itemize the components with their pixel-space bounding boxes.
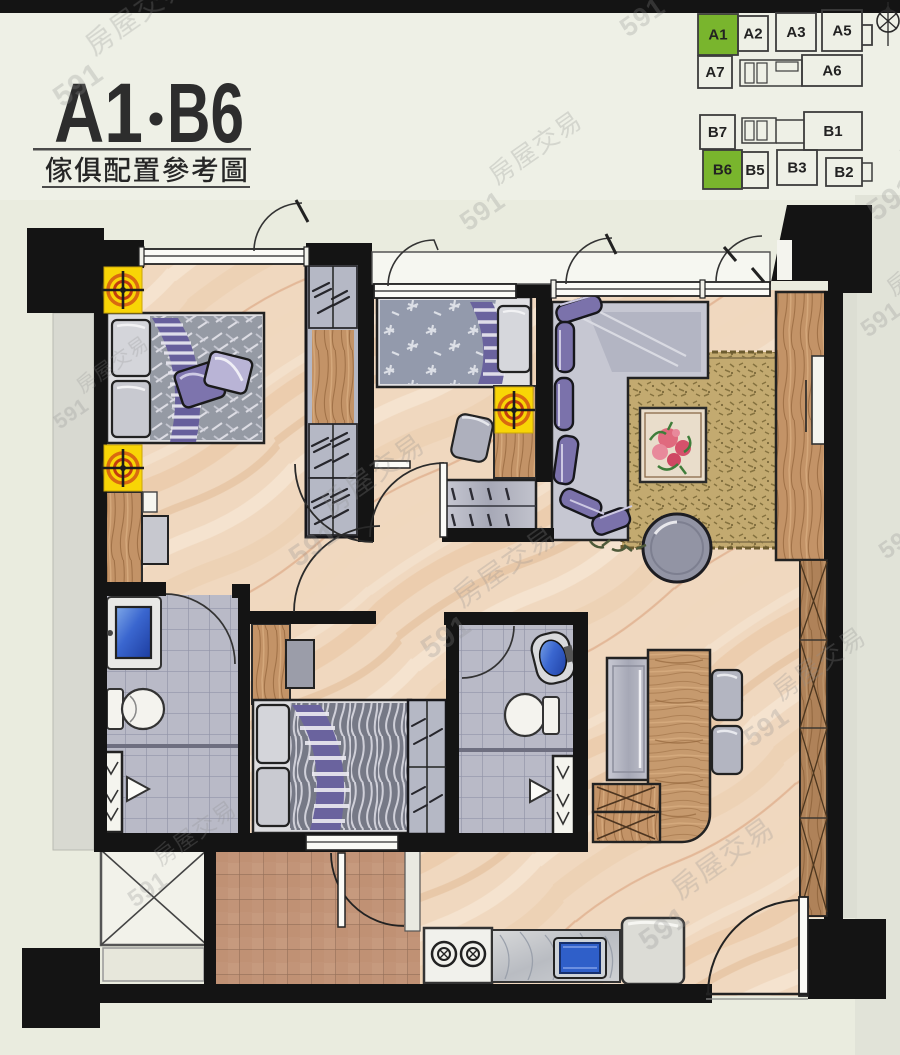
svg-text:B1: B1 xyxy=(823,123,842,140)
svg-text:A7: A7 xyxy=(705,64,724,81)
svg-text:B3: B3 xyxy=(787,160,806,177)
svg-text:A2: A2 xyxy=(743,26,762,43)
svg-text:A5: A5 xyxy=(832,23,851,40)
svg-text:A6: A6 xyxy=(822,63,841,80)
svg-text:B7: B7 xyxy=(708,124,727,141)
svg-text:A1: A1 xyxy=(708,27,727,44)
svg-text:B2: B2 xyxy=(834,164,853,181)
svg-text:A3: A3 xyxy=(786,24,805,41)
svg-text:B6: B6 xyxy=(713,162,732,179)
svg-text:B5: B5 xyxy=(745,162,764,179)
svg-text:B6: B6 xyxy=(167,66,244,160)
